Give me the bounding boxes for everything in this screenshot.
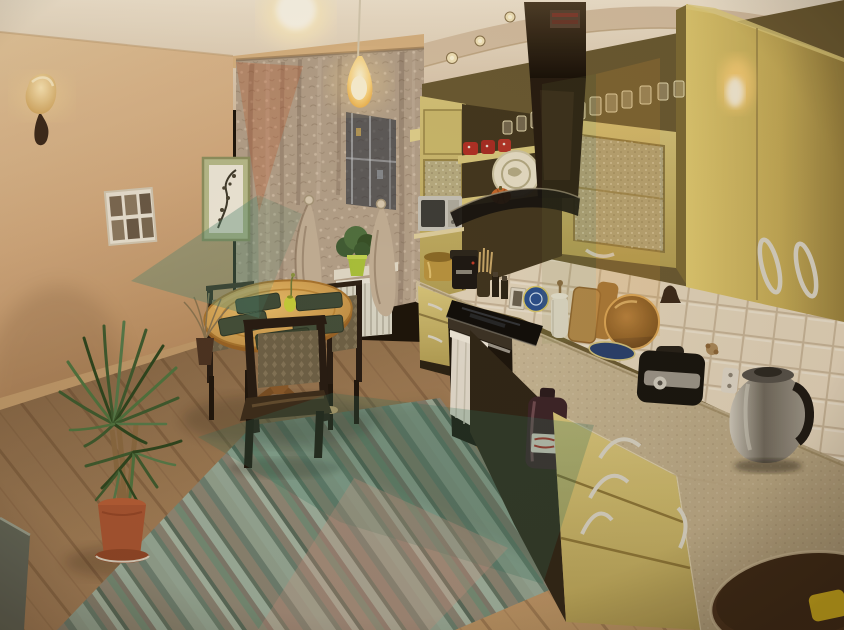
warm-cast (0, 0, 844, 630)
kitchen-scene (0, 0, 844, 630)
kitchen-photo (0, 0, 844, 630)
